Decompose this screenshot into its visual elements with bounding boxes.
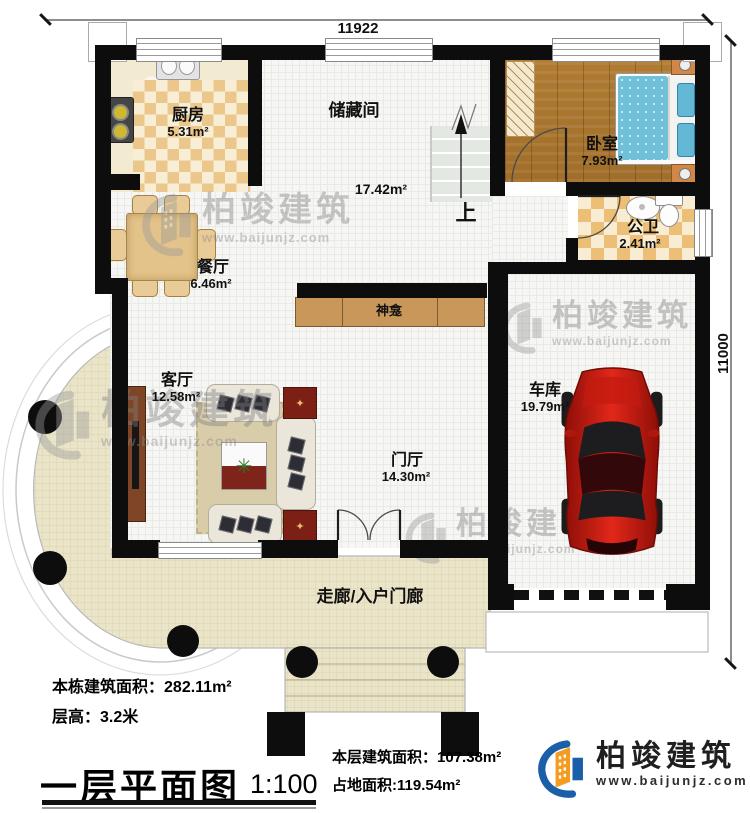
- hall-area: 14.30m²: [372, 470, 440, 484]
- floor-height-value: 3.2米: [100, 709, 138, 726]
- bedroom-area: 7.93m²: [566, 154, 638, 168]
- floor-height-row: 层高：3.2米: [52, 703, 138, 727]
- bathroom-area: 2.41m²: [608, 237, 672, 251]
- stairs-up-label: 上: [450, 202, 482, 225]
- entry-door-arc: [338, 510, 368, 540]
- plan-scale: 1:100: [250, 769, 318, 800]
- kitchen-area: 5.31m²: [152, 125, 224, 139]
- garage-area: 19.79m²: [511, 400, 579, 414]
- storage-area: 17.42m²: [349, 182, 413, 197]
- corridor-label: 走廊/入户门廊: [295, 588, 445, 607]
- building-area-row: 本栋建筑面积：282.11m²: [52, 673, 232, 697]
- building-area-label: 本栋建筑面积：: [52, 679, 164, 696]
- entry-door-arc: [370, 510, 400, 540]
- dimension-width-label: 11922: [328, 21, 388, 38]
- floor-area-value: 107.38m²: [437, 749, 501, 766]
- building-area-value: 282.11m²: [164, 679, 232, 696]
- land-area-label: 占地面积:: [332, 777, 397, 794]
- dining-area: 6.46m²: [177, 277, 245, 291]
- hall-label: 门厅: [377, 452, 437, 470]
- brand-url: www.baijunjz.com: [596, 773, 748, 788]
- storage-label: 储藏间: [320, 102, 388, 121]
- shrine-label: 神龛: [365, 304, 413, 318]
- floor-area-label: 本层建筑面积：: [332, 749, 437, 766]
- living-area: 12.58m²: [142, 390, 210, 404]
- bedroom-door-arc: [512, 128, 566, 182]
- floor-area-row: 本层建筑面积：107.38m²: [332, 746, 501, 767]
- title-underline: [42, 800, 316, 805]
- dimension-height-label: 11000: [716, 326, 738, 381]
- living-label: 客厅: [147, 372, 207, 390]
- bathroom-label: 公卫: [613, 219, 673, 237]
- land-area-value: 119.54m²: [397, 777, 460, 794]
- bedroom-label: 卧室: [572, 136, 632, 154]
- floor-plan: ✳ ✦ ✦ 柏竣建筑 www.baijunjz.com: [0, 0, 750, 813]
- title-underline-2: [42, 807, 316, 809]
- land-area-row: 占地面积:119.54m²: [332, 774, 460, 795]
- brand-name: 柏竣建筑: [596, 740, 748, 773]
- brand-logo-icon: [536, 740, 588, 798]
- brand-logo: 柏竣建筑 www.baijunjz.com: [536, 740, 748, 798]
- floor-height-label: 层高：: [52, 709, 100, 726]
- dining-label: 餐厅: [183, 259, 243, 277]
- kitchen-label: 厨房: [158, 107, 218, 125]
- garage-label: 车库: [515, 382, 575, 400]
